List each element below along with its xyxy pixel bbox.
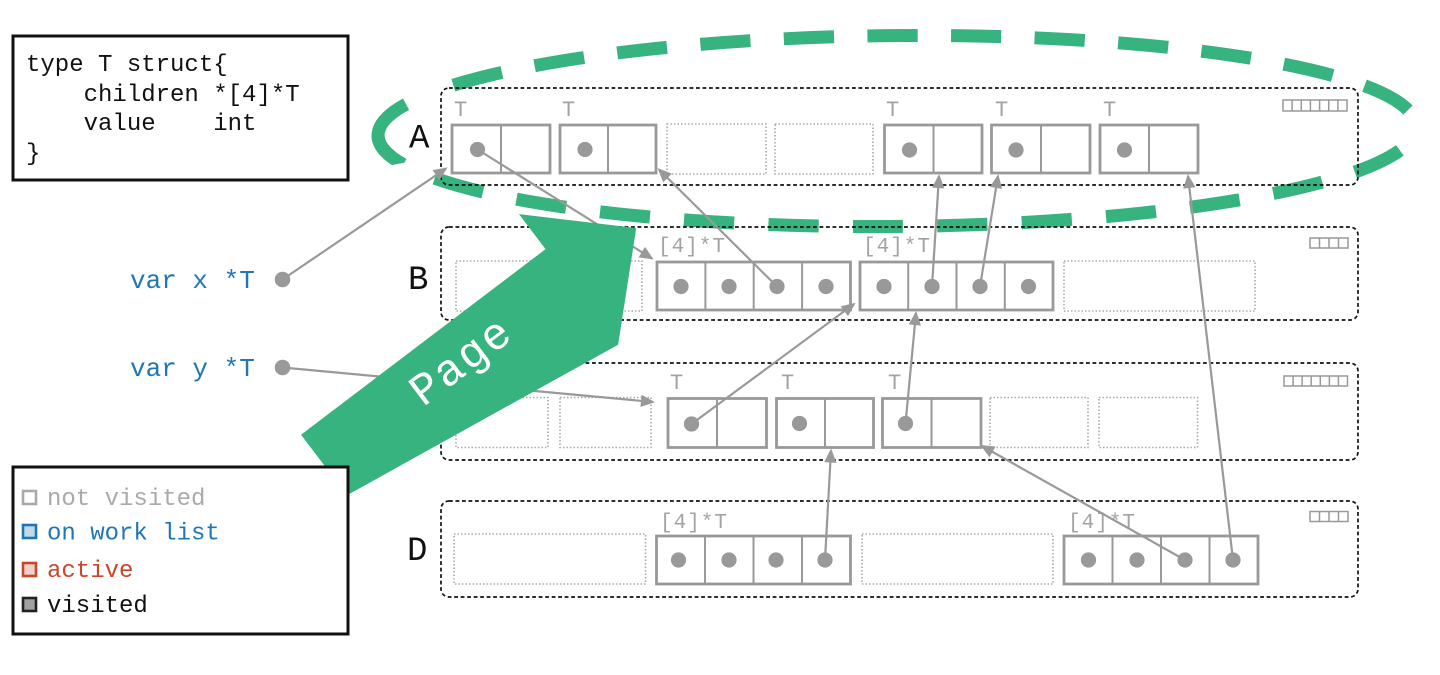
svg-text:T: T [1103,98,1116,123]
svg-text:D: D [407,533,427,571]
svg-text:T: T [781,371,794,396]
svg-text:children *[4]*T: children *[4]*T [26,82,300,109]
svg-text:T: T [886,98,899,123]
svg-text:var x *T: var x *T [130,266,255,296]
svg-text:T: T [670,371,683,396]
svg-text:var y *T: var y *T [130,354,255,384]
svg-text:T: T [454,98,467,123]
svg-text:[4]*T: [4]*T [863,236,931,259]
svg-text:T: T [562,98,575,123]
svg-text:on work list: on work list [47,521,220,548]
svg-text:A: A [409,121,430,159]
svg-text:active: active [47,558,133,585]
svg-text:type T struct{: type T struct{ [26,52,228,79]
svg-text:[4]*T: [4]*T [1068,512,1136,535]
svg-text:visited: visited [47,593,148,620]
svg-text:value int: value int [26,111,256,138]
svg-text:not visited: not visited [47,486,205,513]
svg-text:B: B [408,262,428,300]
svg-text:T: T [995,98,1008,123]
svg-text:[4]*T: [4]*T [658,236,726,259]
svg-text:T: T [888,371,901,396]
svg-text:}: } [26,141,40,168]
svg-text:[4]*T: [4]*T [660,512,728,535]
